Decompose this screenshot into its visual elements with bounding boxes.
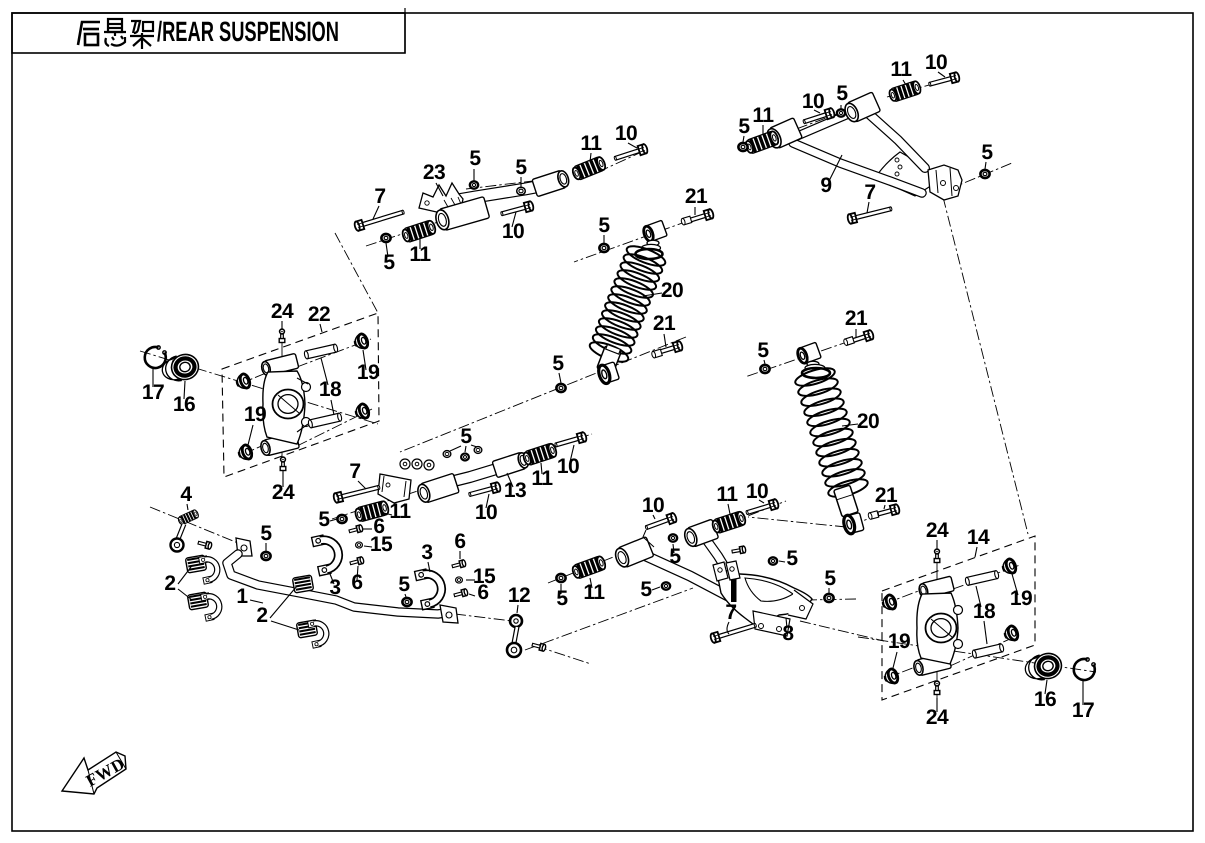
svg-text:13: 13 bbox=[504, 479, 526, 502]
svg-text:5: 5 bbox=[824, 567, 836, 590]
svg-text:7: 7 bbox=[349, 460, 360, 483]
svg-text:21: 21 bbox=[685, 185, 708, 208]
svg-text:19: 19 bbox=[888, 630, 910, 653]
svg-text:11: 11 bbox=[716, 483, 738, 506]
svg-text:19: 19 bbox=[244, 403, 266, 426]
svg-text:5: 5 bbox=[981, 141, 993, 164]
svg-text:21: 21 bbox=[875, 484, 898, 507]
svg-text:10: 10 bbox=[925, 51, 947, 74]
svg-text:4: 4 bbox=[180, 483, 192, 506]
svg-text:10: 10 bbox=[615, 122, 637, 145]
svg-text:21: 21 bbox=[653, 312, 676, 335]
svg-text:20: 20 bbox=[857, 410, 879, 433]
svg-text:10: 10 bbox=[642, 494, 664, 517]
svg-text:5: 5 bbox=[383, 251, 395, 274]
svg-text:7: 7 bbox=[864, 181, 875, 204]
svg-text:20: 20 bbox=[661, 279, 683, 302]
svg-text:5: 5 bbox=[640, 578, 652, 601]
svg-text:3: 3 bbox=[421, 541, 432, 564]
svg-text:10: 10 bbox=[475, 501, 497, 524]
svg-text:5: 5 bbox=[515, 156, 527, 179]
svg-text:19: 19 bbox=[357, 361, 379, 384]
svg-text:5: 5 bbox=[757, 339, 769, 362]
svg-text:11: 11 bbox=[531, 467, 553, 490]
svg-text:14: 14 bbox=[967, 526, 990, 549]
svg-text:5: 5 bbox=[469, 147, 481, 170]
svg-text:5: 5 bbox=[260, 522, 272, 545]
svg-text:6: 6 bbox=[477, 581, 488, 604]
svg-text:23: 23 bbox=[423, 161, 445, 184]
svg-text:8: 8 bbox=[782, 622, 794, 645]
svg-text:1: 1 bbox=[236, 585, 248, 608]
svg-text:3: 3 bbox=[329, 576, 340, 599]
svg-text:12: 12 bbox=[508, 584, 530, 607]
svg-text:5: 5 bbox=[552, 352, 564, 375]
svg-text:5: 5 bbox=[556, 587, 568, 610]
svg-text:18: 18 bbox=[973, 600, 996, 623]
svg-text:11: 11 bbox=[389, 500, 411, 523]
svg-text:7: 7 bbox=[725, 601, 736, 624]
svg-text:24: 24 bbox=[926, 519, 949, 542]
svg-text:9: 9 bbox=[820, 174, 831, 197]
svg-text:10: 10 bbox=[802, 90, 824, 113]
svg-text:5: 5 bbox=[318, 508, 330, 531]
svg-text:5: 5 bbox=[669, 545, 681, 568]
svg-text:5: 5 bbox=[598, 214, 610, 237]
svg-text:15: 15 bbox=[370, 533, 393, 556]
svg-text:11: 11 bbox=[890, 58, 912, 81]
svg-text:21: 21 bbox=[845, 307, 868, 330]
svg-text:5: 5 bbox=[786, 547, 798, 570]
svg-text:2: 2 bbox=[256, 604, 267, 627]
svg-text:11: 11 bbox=[752, 104, 774, 127]
svg-text:5: 5 bbox=[398, 573, 410, 596]
svg-text:22: 22 bbox=[308, 303, 330, 326]
svg-text:7: 7 bbox=[374, 185, 385, 208]
svg-text:/REAR SUSPENSION: /REAR SUSPENSION bbox=[157, 16, 339, 47]
svg-text:2: 2 bbox=[164, 572, 175, 595]
svg-text:18: 18 bbox=[319, 378, 342, 401]
svg-text:24: 24 bbox=[271, 300, 294, 323]
svg-text:11: 11 bbox=[580, 132, 602, 155]
svg-text:5: 5 bbox=[460, 425, 472, 448]
svg-text:5: 5 bbox=[738, 115, 750, 138]
svg-text:5: 5 bbox=[836, 82, 848, 105]
svg-text:6: 6 bbox=[454, 530, 465, 553]
svg-text:19: 19 bbox=[1010, 587, 1032, 610]
svg-text:11: 11 bbox=[583, 581, 605, 604]
svg-text:10: 10 bbox=[746, 480, 768, 503]
svg-text:10: 10 bbox=[557, 455, 579, 478]
